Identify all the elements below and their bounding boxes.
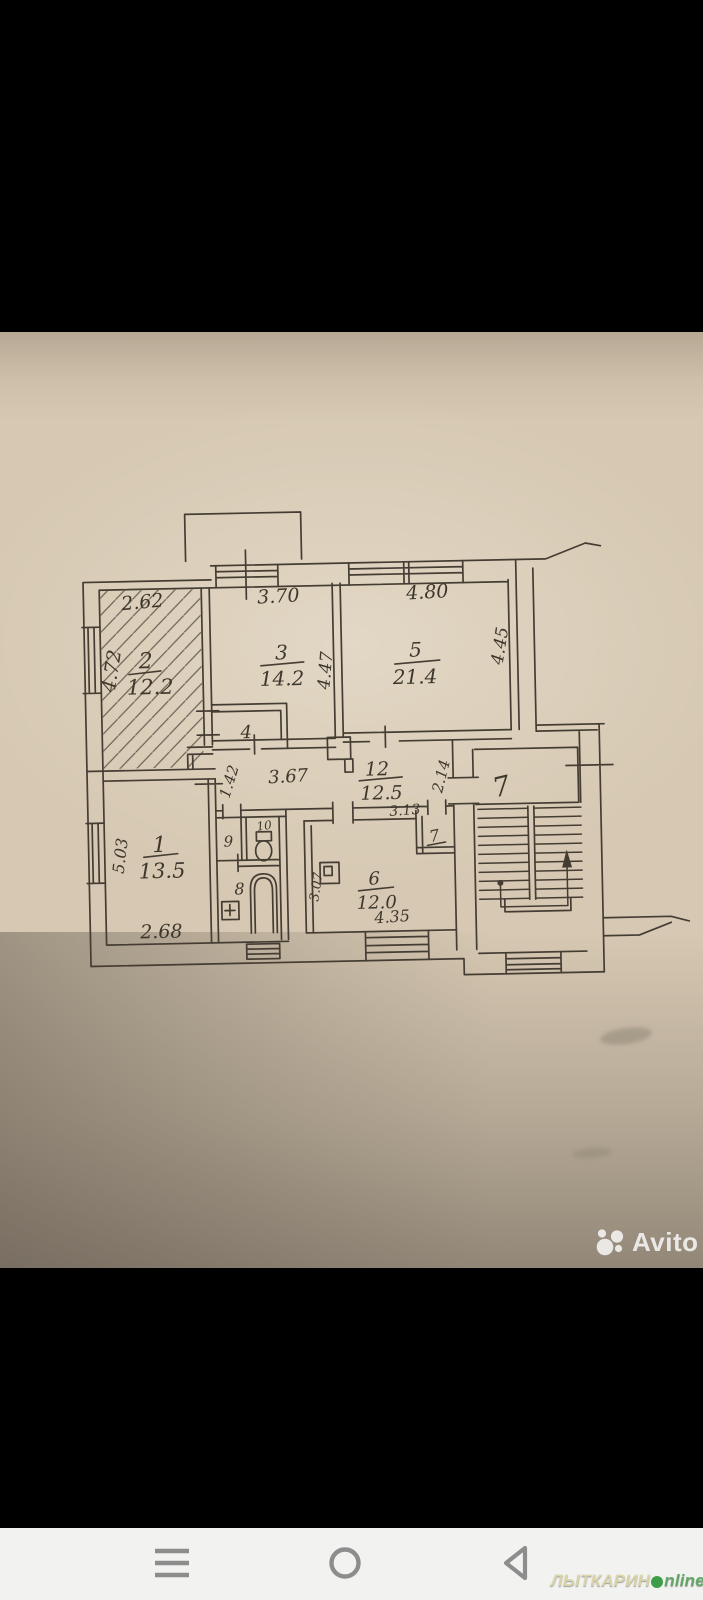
corridor-dim-right-h: 3.13: [389, 802, 421, 820]
room3-number: 3: [275, 640, 288, 664]
room5-dim-top: 4.80: [405, 580, 449, 604]
room6-number: 6: [368, 868, 380, 889]
room1-dim-bottom: 2.68: [139, 921, 183, 944]
room1-number: 1: [152, 833, 167, 858]
room6-dim-bottom: 4.35: [373, 906, 411, 928]
closet4-number: 4: [239, 722, 252, 743]
bathtub: [250, 874, 277, 934]
avito-watermark: Avito: [596, 1227, 699, 1258]
room3-dim-top: 3.70: [257, 584, 300, 608]
bath8-number: 8: [234, 879, 245, 898]
room6-dim-left: 3.07: [307, 871, 326, 903]
stairs-steps-left-flight: [478, 808, 530, 899]
vent-niche-bottom-wall: [247, 944, 280, 960]
stairs-walk-line: [500, 859, 568, 906]
toilet-bowl: [255, 841, 271, 861]
menu-icon[interactable]: [152, 1543, 192, 1583]
corridor-dim-right-v: 2.14: [428, 758, 454, 796]
letterbox-bottom: [0, 1268, 703, 1528]
room1-dim-left: 5.03: [109, 837, 132, 875]
corridor-dim-left: 1.42: [216, 763, 243, 800]
home-circle-icon[interactable]: [325, 1543, 365, 1583]
corridor-top-wall: [212, 738, 335, 750]
wc9-number: 9: [224, 832, 234, 850]
site-watermark-o-dot: [651, 1576, 663, 1588]
site-watermark-prefix: ЛЫТКАРИН: [551, 1571, 650, 1591]
room5-number: 5: [409, 637, 422, 661]
room1-area: 13.5: [138, 858, 185, 883]
corridor-dim-width: 3.67: [268, 765, 310, 788]
room5-area: 21.4: [392, 664, 438, 689]
stairwell-number: 7: [490, 770, 515, 804]
wc10-number: 10: [256, 818, 273, 834]
room3-dim-right: 4.47: [314, 651, 337, 692]
room2-dim-top: 2.62: [119, 589, 164, 615]
window-symbol-bottom: [365, 930, 429, 960]
avito-logo-icon: [596, 1227, 627, 1258]
site-watermark: ЛЫТКАРИНnline: [551, 1571, 703, 1591]
closet7-number: 7: [428, 825, 442, 846]
corridor-area: 12.5: [360, 782, 403, 805]
room2-number: 2: [137, 649, 153, 674]
avito-watermark-label: Avito: [632, 1227, 699, 1258]
room3-area: 14.2: [260, 666, 305, 691]
stairs-steps-right-flight: [534, 807, 583, 898]
flat-entrance-wall: [447, 739, 481, 950]
stairwell-walls: [474, 722, 690, 974]
corridor-number: 12: [365, 758, 390, 781]
balcony-outline: [185, 512, 302, 561]
site-watermark-suffix: nline: [664, 1571, 703, 1591]
phone-screen: 2.62 4.72 2 12.2 3.70 3 14.2 4.47 4.80 5…: [0, 0, 703, 1600]
room5-bottom-wall: [343, 724, 511, 749]
room2-area: 12.2: [127, 675, 174, 700]
back-triangle-icon[interactable]: [498, 1543, 538, 1583]
sink: [222, 901, 239, 919]
